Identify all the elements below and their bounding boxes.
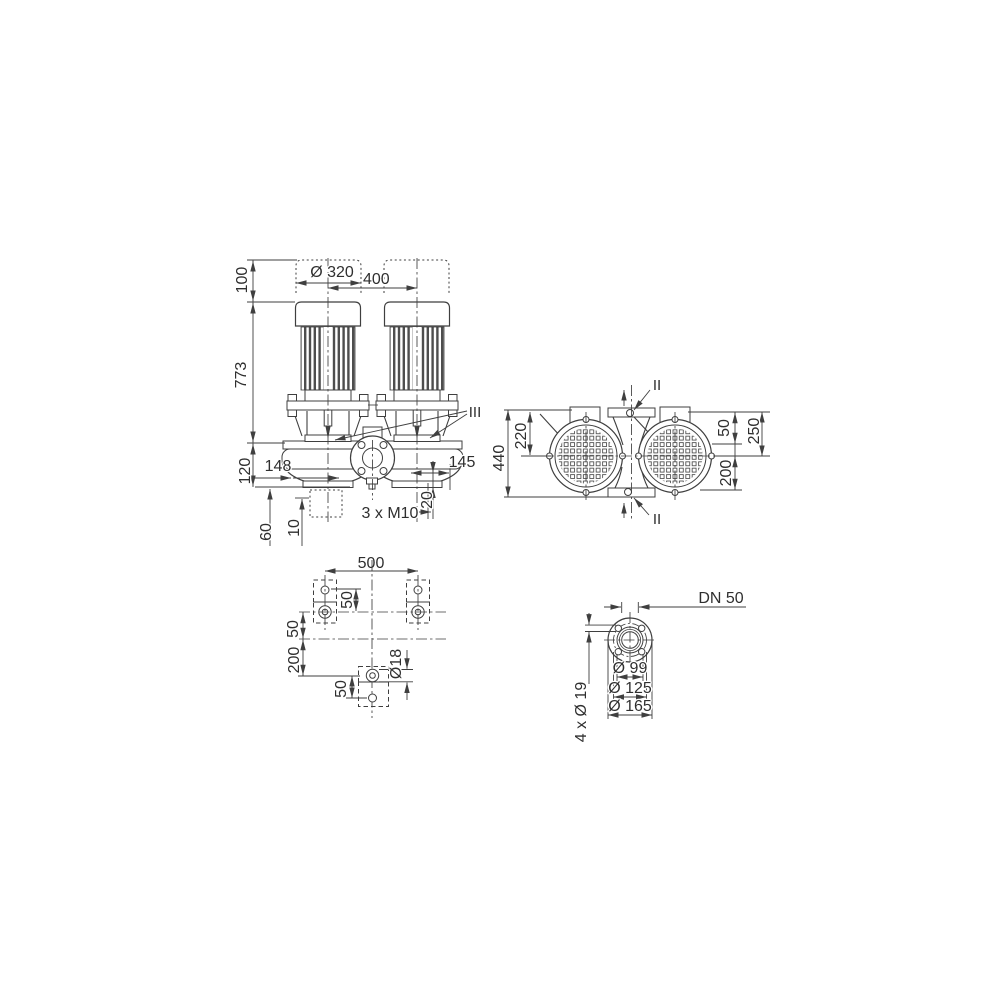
dim-left-offset: 148 [265,458,292,475]
top-view: II II 440 220 50 250 200 [491,377,770,528]
pump-dimensional-drawing: Ø 320 400 100 773 120 148 145 20 3 x M10… [0,0,1000,1000]
dim-bolt-holes: 4 x Ø 19 [573,682,590,743]
dim-base-height: 120 [237,458,254,485]
section-mark-II-bottom: II [653,511,661,528]
dim-bolt-circle-diameter: Ø 125 [608,680,652,697]
dim-right-offset: 145 [449,454,476,471]
foundation-view: 500 50 50 200 [285,555,446,718]
anchor-lower [359,667,389,707]
dim-hole-diameter: Ø18 [388,649,405,679]
anchor-upper-right [407,575,430,630]
dim-total-height: 773 [233,362,250,389]
dim-motor-spacing: 400 [363,271,390,288]
dim-motor-diameter: Ø 320 [310,264,354,281]
dim-grout-thickness: 10 [286,519,303,537]
dim-port-offset: 50 [716,419,733,437]
drawing-canvas: Ø 320 400 100 773 120 148 145 20 3 x M10… [0,0,1000,1000]
dim-tapped-holes: 3 x M10 [362,505,419,522]
dim-axis-to-edge: 200 [718,460,735,487]
section-mark-II-top: II [653,377,661,394]
dim-lower-axis-offset: 200 [286,647,303,674]
dim-overall-depth: 250 [746,418,763,445]
front-view: Ø 320 400 100 773 120 148 145 20 3 x M10… [233,258,481,546]
dim-bolt-spacing: 500 [358,555,385,572]
dim-motor-axis-offset: 220 [513,423,530,450]
dim-cap-height: 100 [234,267,251,294]
dim-overall-width: 440 [491,445,508,472]
dim-axis-offset: 50 [285,620,302,638]
anchor-upper-left [314,575,337,630]
dim-nominal-diameter: DN 50 [698,590,743,607]
dim-foot-thickness: 20 [419,491,436,509]
section-mark-III: III [469,404,482,421]
dim-lower-hole-offset: 50 [333,680,350,698]
dim-upper-hole-offset: 50 [339,591,356,609]
dim-outer-diameter: Ø 165 [608,698,652,715]
dim-anchor-depth: 60 [258,523,275,541]
flange-view: DN 50 Ø 99 Ø 125 Ø 165 4 x Ø 19 [573,590,746,742]
foundation-pocket [310,490,342,517]
dim-pilot-diameter: Ø 99 [613,660,648,677]
